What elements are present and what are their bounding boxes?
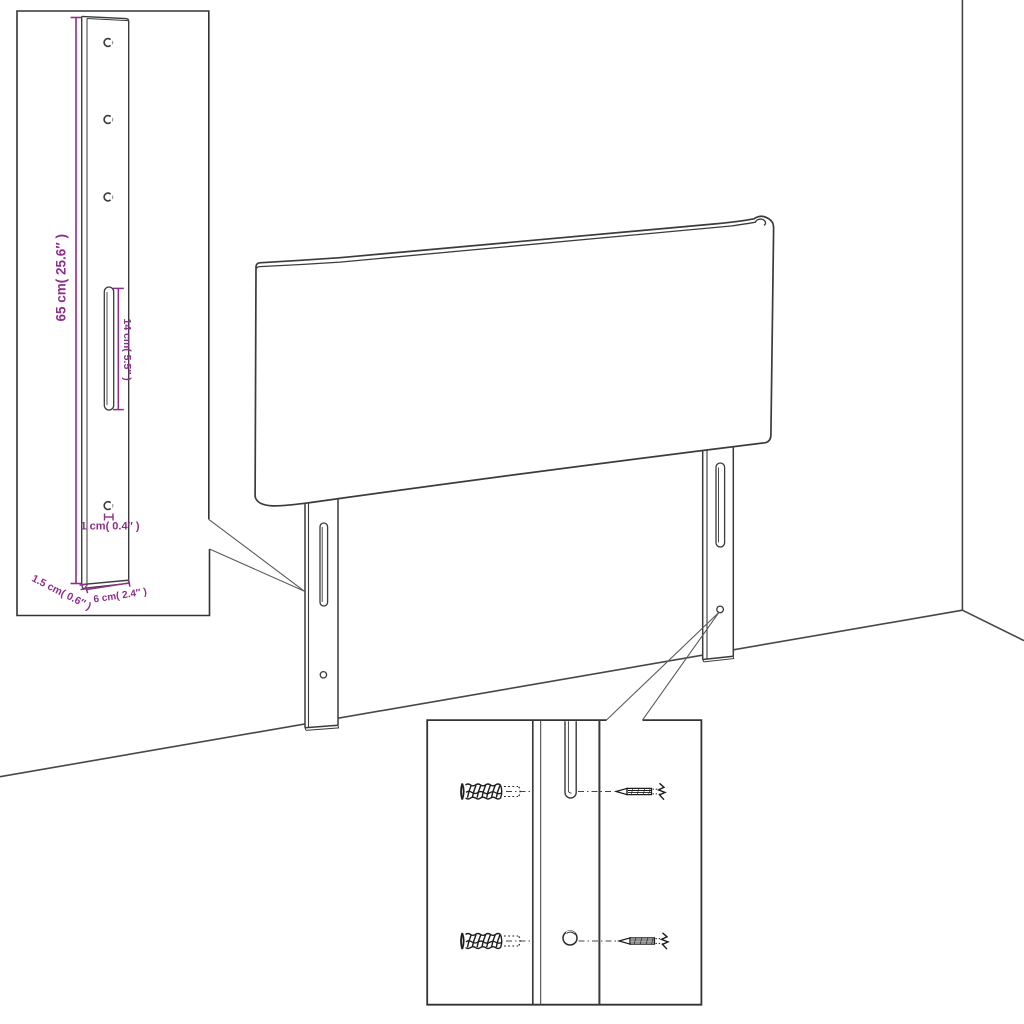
svg-text:1 cm( 0.4″ ): 1 cm( 0.4″ ) (81, 521, 140, 533)
svg-text:65 cm( 25.6″ ): 65 cm( 25.6″ ) (54, 234, 69, 322)
svg-text:14 cm( 5.5″ ): 14 cm( 5.5″ ) (121, 319, 133, 381)
